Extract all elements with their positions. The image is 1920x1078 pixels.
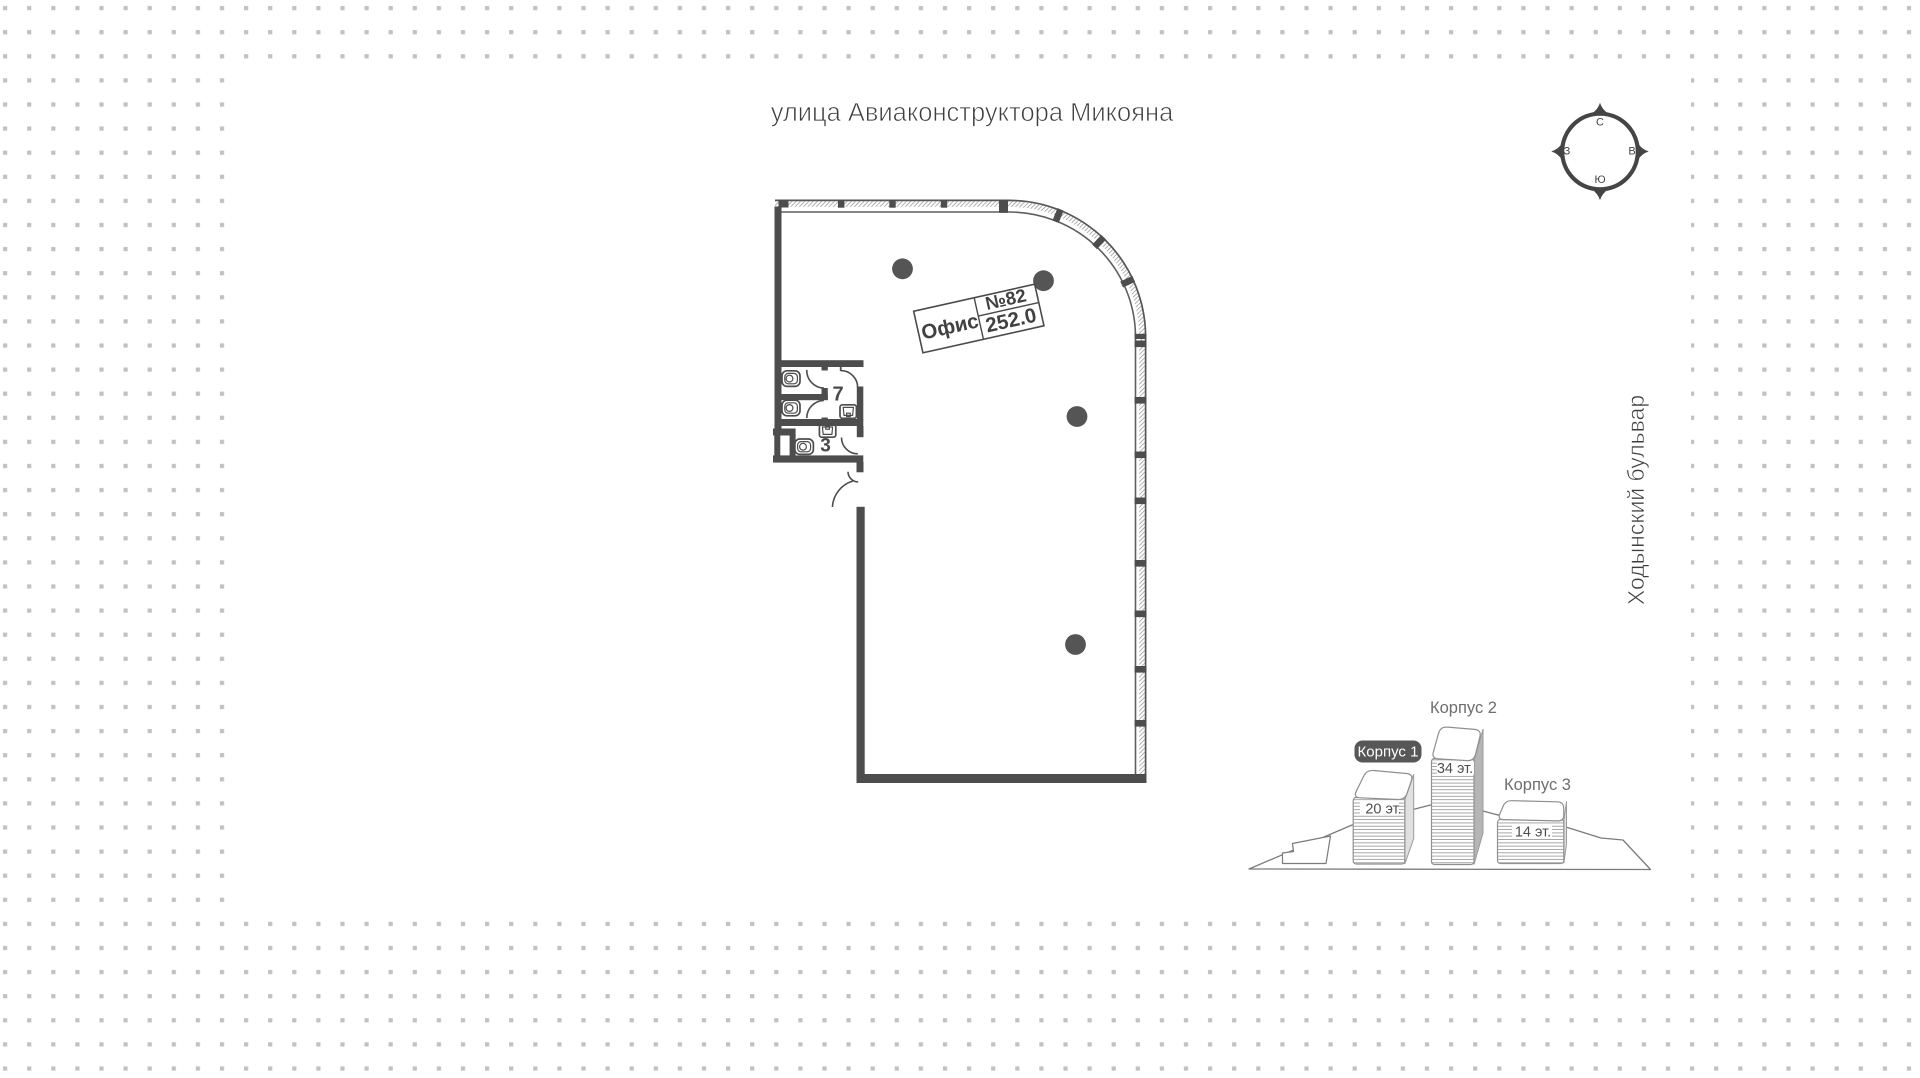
svg-text:Корпус 2: Корпус 2	[1430, 699, 1497, 717]
svg-text:Корпус 3: Корпус 3	[1504, 776, 1571, 794]
svg-text:7: 7	[832, 384, 843, 406]
svg-text:3: 3	[820, 436, 831, 457]
svg-text:З: З	[1564, 146, 1571, 158]
svg-text:20 эт.: 20 эт.	[1365, 802, 1401, 818]
svg-text:улица Авиаконструктора Микояна: улица Авиаконструктора Микояна	[771, 99, 1174, 127]
svg-text:34 эт.: 34 эт.	[1437, 761, 1473, 777]
svg-text:Ходынский бульвар: Ходынский бульвар	[1623, 395, 1649, 605]
svg-text:В: В	[1628, 146, 1635, 158]
svg-text:Ю: Ю	[1594, 174, 1605, 186]
svg-text:С: С	[1596, 117, 1604, 129]
svg-text:14 эт.: 14 эт.	[1515, 825, 1551, 841]
svg-text:Корпус 1: Корпус 1	[1358, 744, 1419, 761]
